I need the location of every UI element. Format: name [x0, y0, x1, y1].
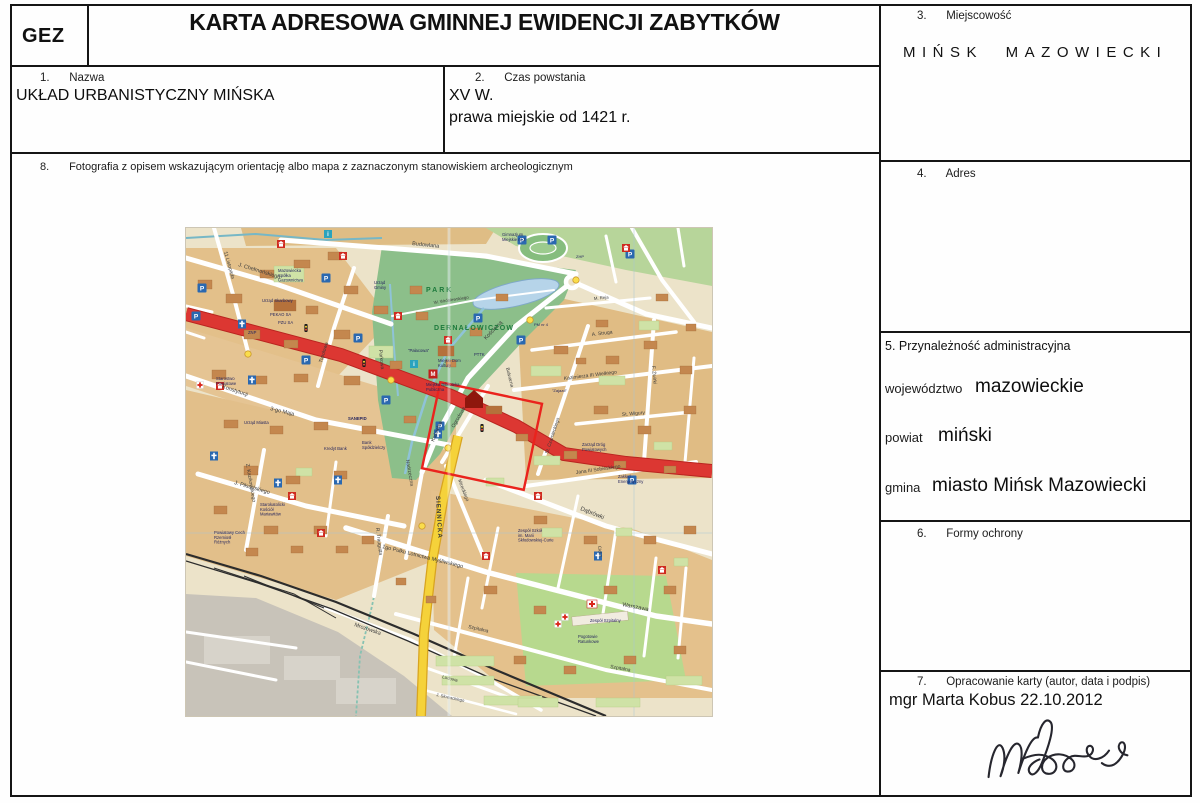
parking-icon: P — [382, 396, 391, 405]
dot-icon — [527, 317, 533, 323]
border-left — [10, 4, 12, 797]
svg-text:"Pałacowa": "Pałacowa" — [408, 348, 430, 353]
svg-text:P: P — [200, 285, 205, 292]
poi-icon — [658, 566, 666, 574]
church-icon — [274, 479, 282, 488]
svg-text:Urząd Skarbowy: Urząd Skarbowy — [262, 298, 294, 303]
poi-icon — [288, 492, 296, 500]
field-opracowanie-value: mgr Marta Kobus 22.10.2012 — [889, 691, 1103, 710]
divider-sec6-sec7 — [881, 670, 1192, 672]
powiat-label: powiat — [885, 430, 923, 445]
svg-text:P: P — [628, 251, 633, 258]
svg-text:PEKAO SA: PEKAO SA — [270, 312, 291, 317]
svg-text:Urząd Miasta: Urząd Miasta — [244, 420, 269, 425]
city-map-minsk-mazowiecki: PPPPPPPPPPPPPMii J. Chełmońskiego11 List… — [186, 228, 712, 716]
poi-icon — [482, 552, 490, 560]
divider-right-column — [879, 4, 881, 797]
svg-text:StarostwoPowiatowe: StarostwoPowiatowe — [216, 376, 237, 386]
svg-text:M: M — [431, 372, 436, 378]
dot-icon — [573, 277, 579, 283]
field-formy-label: 6. Formy ochrony — [917, 528, 1023, 540]
gmina-label: gmina — [885, 480, 920, 495]
parking-icon: P — [198, 284, 207, 293]
divider-sec3-sec4 — [881, 160, 1192, 162]
field-czas-label: 2. Czas powstania — [475, 72, 585, 84]
cross-icon — [555, 621, 562, 628]
field-czas-value-line1: XV W. — [449, 87, 493, 105]
dot-icon — [388, 377, 394, 383]
form-title: KARTA ADRESOWA GMINNEJ EWIDENCJI ZABYTKÓ… — [90, 9, 879, 36]
svg-text:P: P — [384, 397, 389, 404]
parking-icon: P — [302, 356, 311, 365]
museum-icon: M — [429, 370, 438, 379]
svg-text:UrządGminy: UrządGminy — [374, 280, 387, 290]
divider-gez — [87, 4, 89, 66]
cross-icon — [562, 614, 569, 621]
poi-icon — [277, 240, 285, 248]
field-opracowanie-label: 7. Opracowanie karty (autor, data i podp… — [917, 676, 1150, 688]
svg-text:P: P — [194, 313, 199, 320]
cross-icon — [197, 382, 204, 389]
svg-text:PogotowieRatunkowe: PogotowieRatunkowe — [578, 634, 600, 644]
field-miejscowosc-num: 3. — [917, 10, 943, 22]
svg-text:P: P — [476, 315, 481, 322]
heritage-card-document: GEZ KARTA ADRESOWA GMINNEJ EWIDENCJI ZAB… — [0, 0, 1200, 803]
svg-text:Kredyt Bank: Kredyt Bank — [324, 446, 348, 451]
svg-text:PTTK: PTTK — [474, 352, 485, 357]
parking-icon: P — [517, 336, 526, 345]
svg-text:SANEPID: SANEPID — [348, 416, 367, 421]
poi-icon — [622, 244, 630, 252]
divider-sec5-sec6 — [881, 520, 1192, 522]
svg-text:ZHP: ZHP — [576, 254, 584, 259]
wojewodztwo-value: mazowieckie — [975, 376, 1084, 398]
field-fotografia-label: 8. Fotografia z opisem wskazującym orien… — [40, 161, 573, 173]
border-right — [1190, 4, 1192, 797]
svg-text:Zespół Szpitalny: Zespół Szpitalny — [590, 618, 622, 623]
parking-icon: P — [322, 274, 331, 283]
field-przynaleznosc-label: 5. Przynależność administracyjna — [885, 339, 1071, 353]
info-icon: i — [324, 230, 332, 238]
field-nazwa-value: UKŁAD URBANISTYCZNY MIŃSKA — [16, 87, 274, 105]
svg-text:PZU SA: PZU SA — [278, 320, 293, 325]
parking-icon: P — [548, 236, 557, 245]
info-icon: i — [410, 360, 418, 368]
tlight-icon — [304, 324, 307, 332]
svg-text:GimnazjumMiejskie nr 2: GimnazjumMiejskie nr 2 — [502, 232, 526, 242]
svg-text:P: P — [304, 357, 309, 364]
dot-icon — [419, 523, 425, 529]
tlight-icon — [362, 359, 365, 367]
gmina-value: miasto Mińsk Mazowiecki — [932, 475, 1146, 497]
signature-handwritten — [975, 710, 1145, 795]
svg-text:P: P — [324, 275, 329, 282]
svg-text:P: P — [550, 237, 555, 244]
dot-icon — [245, 351, 251, 357]
svg-text:ZNP: ZNP — [248, 330, 257, 335]
parking-icon: P — [192, 312, 201, 321]
poi-icon — [534, 492, 542, 500]
svg-text:P: P — [356, 335, 361, 342]
divider-nazwa-czas — [443, 65, 445, 154]
svg-text:DERNAŁOWICZÓW: DERNAŁOWICZÓW — [434, 323, 514, 332]
map-photo-urban-layout: PPPPPPPPPPPPPMii J. Chełmońskiego11 List… — [186, 228, 712, 716]
poi-icon — [317, 529, 325, 537]
svg-text:Zarząd DrógPowiatowych: Zarząd DrógPowiatowych — [582, 442, 607, 452]
gez-logo: GEZ — [22, 25, 65, 48]
field-miejscowosc-label: 3. Miejscowość — [917, 10, 1011, 22]
svg-text:"Zajazd": "Zajazd" — [552, 388, 567, 393]
tlight-icon — [480, 424, 483, 432]
field-nazwa-label: 1. Nazwa — [40, 72, 104, 84]
poi-icon — [339, 252, 347, 260]
field-miejscowosc-value: MIŃSK MAZOWIECKI — [903, 44, 1167, 61]
parking-icon: P — [474, 314, 483, 323]
wojewodztwo-label: województwo — [885, 381, 962, 396]
church-icon — [334, 476, 342, 485]
hospital-icon — [587, 600, 597, 608]
poi-icon — [394, 312, 402, 320]
church-icon — [238, 320, 246, 329]
svg-text:P: P — [519, 337, 524, 344]
divider-sec4-sec5 — [881, 331, 1192, 333]
field-adres-label: 4. Adres — [917, 168, 976, 180]
border-top — [10, 4, 1192, 6]
church-icon — [210, 452, 218, 461]
church-icon — [248, 376, 256, 385]
svg-text:PM nr 4: PM nr 4 — [534, 322, 549, 327]
powiat-value: miński — [938, 425, 992, 447]
parking-icon: P — [354, 334, 363, 343]
border-bottom — [10, 795, 1192, 797]
divider-under-title — [10, 65, 881, 67]
field-czas-value-line2: prawa miejskie od 1421 r. — [449, 109, 630, 127]
